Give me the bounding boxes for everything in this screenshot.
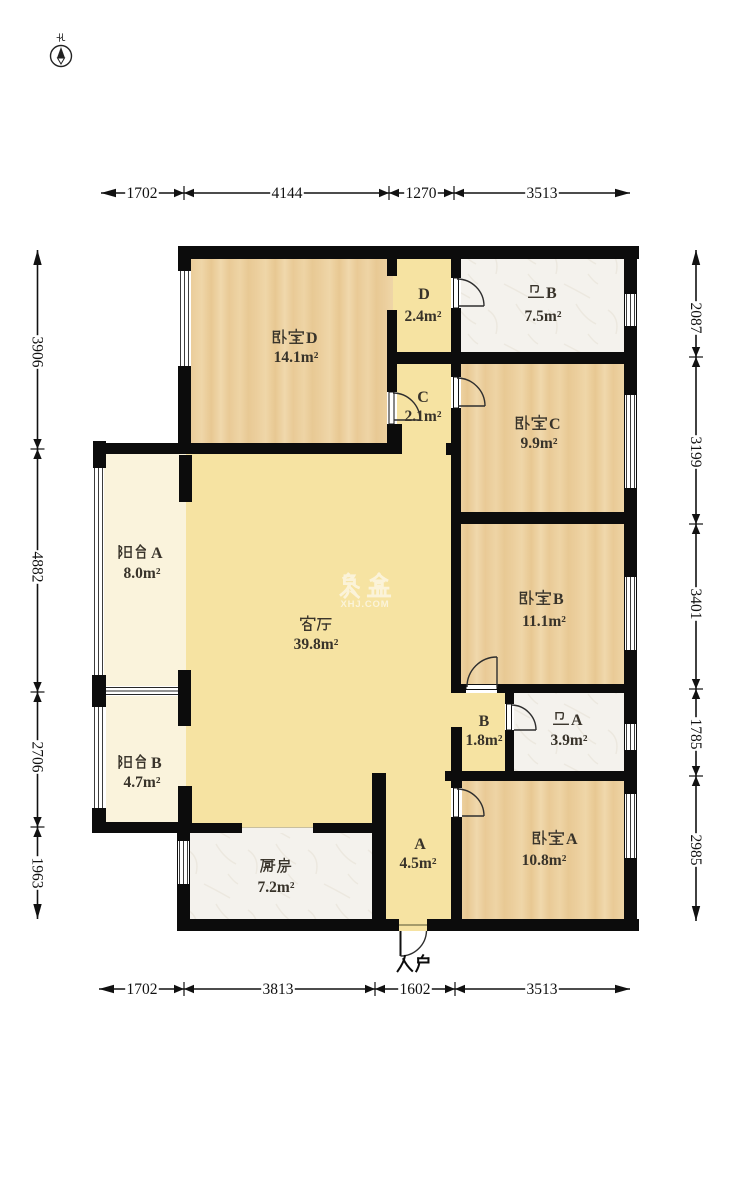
svg-text:A: A [566,831,578,848]
svg-text:B: B [479,713,490,730]
svg-text:1602: 1602 [400,981,431,998]
svg-text:3199: 3199 [687,437,704,468]
svg-text:A: A [571,712,583,729]
svg-text:39.8m²: 39.8m² [294,636,339,653]
svg-text:8.0m²: 8.0m² [124,565,161,582]
svg-text:3906: 3906 [28,337,45,368]
svg-text:14.1m²: 14.1m² [274,349,319,366]
svg-text:3813: 3813 [263,981,294,998]
svg-text:4.5m²: 4.5m² [400,855,437,872]
svg-text:C: C [417,389,429,406]
svg-text:10.8m²: 10.8m² [522,852,567,869]
svg-text:3401: 3401 [687,589,704,620]
svg-text:1702: 1702 [127,981,158,998]
svg-text:C: C [549,416,561,433]
svg-text:3513: 3513 [527,185,558,202]
svg-text:3513: 3513 [527,981,558,998]
svg-text:1702: 1702 [127,185,158,202]
svg-text:2087: 2087 [687,303,704,334]
svg-text:2.1m²: 2.1m² [405,408,442,425]
svg-text:B: B [553,591,564,608]
svg-text:B: B [546,285,557,302]
svg-text:9.9m²: 9.9m² [521,435,558,452]
svg-text:3.9m²: 3.9m² [551,732,588,749]
svg-text:2706: 2706 [28,742,45,773]
svg-text:B: B [151,755,162,772]
svg-text:1785: 1785 [687,719,704,750]
svg-text:1.8m²: 1.8m² [466,732,503,749]
svg-text:7.5m²: 7.5m² [525,308,562,325]
svg-text:1963: 1963 [28,858,45,889]
svg-text:1270: 1270 [406,185,437,202]
svg-text:A: A [151,545,163,562]
svg-text:4.7m²: 4.7m² [124,774,161,791]
svg-text:XHJ.COM: XHJ.COM [341,599,390,610]
svg-text:4144: 4144 [272,185,303,202]
svg-text:7.2m²: 7.2m² [258,879,295,896]
svg-text:2.4m²: 2.4m² [405,308,442,325]
svg-text:D: D [418,286,430,303]
svg-text:4882: 4882 [28,552,45,583]
svg-text:11.1m²: 11.1m² [522,613,566,630]
svg-text:A: A [414,836,426,853]
svg-text:2985: 2985 [687,835,704,866]
svg-text:D: D [306,330,318,347]
